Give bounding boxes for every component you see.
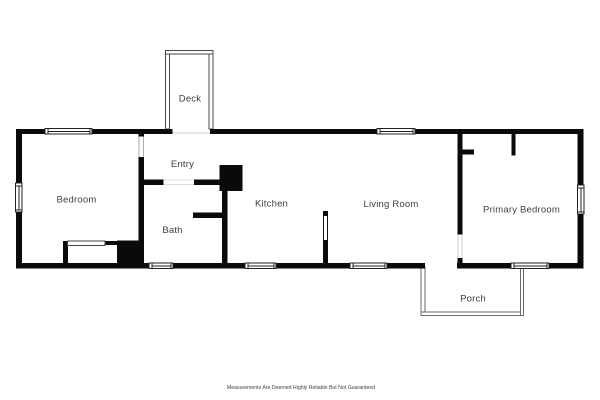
svg-text:Entry: Entry bbox=[171, 159, 194, 170]
svg-text:Bedroom: Bedroom bbox=[57, 195, 97, 206]
svg-text:Porch: Porch bbox=[460, 294, 486, 305]
svg-text:Bath: Bath bbox=[162, 225, 182, 236]
svg-text:Primary Bedroom: Primary Bedroom bbox=[483, 204, 560, 215]
svg-text:Measurements Are Deemed Highly: Measurements Are Deemed Highly Reliable … bbox=[227, 385, 375, 391]
svg-text:Kitchen: Kitchen bbox=[255, 199, 288, 210]
svg-text:Living Room: Living Room bbox=[363, 199, 418, 210]
svg-text:Deck: Deck bbox=[179, 94, 201, 105]
